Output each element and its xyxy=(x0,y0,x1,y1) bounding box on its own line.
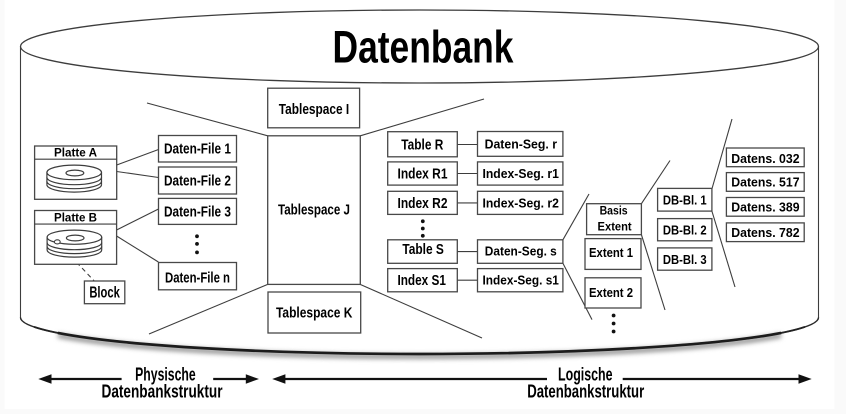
svg-text:Table R: Table R xyxy=(401,136,443,153)
svg-text:Datenbankstruktur: Datenbankstruktur xyxy=(527,381,644,402)
svg-text:Datens. 517: Datens. 517 xyxy=(731,175,799,190)
svg-text:Tablespace I: Tablespace I xyxy=(279,101,349,118)
svg-text:Tablespace K: Tablespace K xyxy=(276,305,353,322)
svg-text:DB-Bl. 1: DB-Bl. 1 xyxy=(663,193,707,208)
svg-text:Platte B: Platte B xyxy=(54,210,97,224)
svg-text:Block: Block xyxy=(89,284,120,301)
svg-text:Daten-Seg. r: Daten-Seg. r xyxy=(485,137,557,152)
svg-text:Extent 2: Extent 2 xyxy=(589,285,633,300)
svg-text:Daten-File 2: Daten-File 2 xyxy=(164,172,231,189)
svg-text:Extent: Extent xyxy=(598,221,632,233)
svg-text:Datenbank: Datenbank xyxy=(333,22,515,73)
svg-text:Index-Seg. s1: Index-Seg. s1 xyxy=(483,273,559,288)
svg-text:DB-Bl. 2: DB-Bl. 2 xyxy=(663,222,707,237)
svg-text:Datenbankstruktur: Datenbankstruktur xyxy=(102,381,223,402)
svg-text:Daten-File 1: Daten-File 1 xyxy=(164,140,231,157)
svg-text:Index R2: Index R2 xyxy=(398,195,448,212)
svg-text:Daten-Seg. s: Daten-Seg. s xyxy=(485,243,557,258)
svg-text:Daten-File 3: Daten-File 3 xyxy=(164,204,231,221)
svg-text:Index R1: Index R1 xyxy=(398,165,448,182)
svg-text:Table S: Table S xyxy=(402,241,444,258)
svg-text:Index-Seg. r2: Index-Seg. r2 xyxy=(483,196,559,211)
svg-text:Datens. 389: Datens. 389 xyxy=(731,200,799,215)
svg-text:Platte A: Platte A xyxy=(54,146,97,160)
svg-text:Index S1: Index S1 xyxy=(397,272,446,289)
svg-text:Daten-File n: Daten-File n xyxy=(165,270,230,287)
svg-text:Extent 1: Extent 1 xyxy=(589,245,633,260)
svg-text:DB-Bl. 3: DB-Bl. 3 xyxy=(663,252,707,267)
svg-text:Datens. 782: Datens. 782 xyxy=(731,225,799,240)
svg-text:Basis: Basis xyxy=(600,206,628,218)
svg-text:Index-Seg. r1: Index-Seg. r1 xyxy=(483,166,559,181)
svg-text:Tablespace J: Tablespace J xyxy=(278,202,350,219)
svg-text:Datens. 032: Datens. 032 xyxy=(731,151,799,166)
